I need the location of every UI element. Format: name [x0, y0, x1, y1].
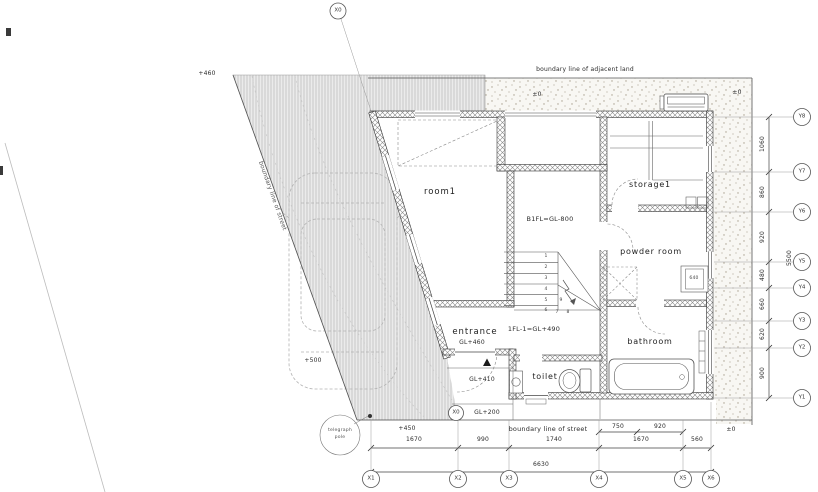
telegraph-pole-label-2: pole	[335, 435, 346, 441]
stair-step-5: 5	[544, 299, 547, 304]
grid-x0-bottom-label: X0	[452, 410, 459, 416]
level-fl1: 1FL-1=GL+490	[508, 326, 560, 333]
floor-plan-drawing: boundary line of adjacent land ±0 ±0 +46…	[0, 0, 818, 492]
dim-right-2: 920	[760, 231, 766, 243]
dim-bottom-0: 1670	[406, 437, 422, 443]
dim-bottom-2: 1740	[546, 437, 562, 443]
grid-x6-label: X6	[707, 476, 714, 482]
grid-y4-label: Y4	[799, 285, 806, 291]
plan-linework	[0, 0, 818, 492]
level-gl410: GL+410	[469, 377, 495, 383]
grid-x4-label: X4	[595, 476, 602, 482]
room-label-toilet: toilet	[532, 373, 557, 381]
dim-bottom-sub-1: 920	[654, 424, 666, 430]
room-label-storage1: storage1	[629, 181, 671, 189]
level-pm0-top-right: ±0	[732, 90, 741, 96]
level-gl460: GL+460	[459, 340, 485, 346]
boundary-street-bottom-label: boundary line of street	[509, 426, 588, 433]
grid-y7-label: Y7	[799, 169, 806, 175]
toilet-sink	[510, 371, 523, 393]
basin-width-label: 640	[689, 277, 698, 282]
dim-bottom-total: 6630	[533, 462, 549, 468]
far-street-boundary-line	[5, 143, 105, 492]
dim-right-1: 860	[760, 186, 766, 198]
room-label-entrance: entrance	[452, 328, 497, 337]
level-plus450: +450	[398, 426, 415, 432]
dim-bottom-3: 1670	[633, 437, 649, 443]
dim-right-4: 660	[760, 298, 766, 310]
grid-x3-label: X3	[505, 476, 512, 482]
grid-y1-label: Y1	[799, 395, 806, 401]
level-pm0-top-left: ±0	[532, 92, 541, 98]
stair-step-8: 8	[566, 311, 569, 316]
level-plus460: +460	[198, 71, 215, 77]
room-label-room1: room1	[424, 188, 456, 197]
stair-step-7: 7	[555, 311, 558, 316]
grid-x5-label: X5	[679, 476, 686, 482]
dim-right-6: 900	[760, 367, 766, 379]
stair-step-4: 4	[544, 288, 547, 293]
stair-step-6: 6	[544, 309, 547, 314]
bathroom-towel-rack	[699, 331, 705, 373]
telegraph-pole-label-1: telegraph	[328, 428, 352, 434]
level-plus500: +500	[304, 358, 321, 364]
grid-y8-label: Y8	[799, 114, 806, 120]
level-pm0-bottom-right: ±0	[726, 427, 735, 433]
grid-y5-label: Y5	[799, 259, 806, 265]
grid-y2-label: Y2	[799, 345, 806, 351]
boundary-adjacent-land-label: boundary line of adjacent land	[536, 67, 634, 73]
room-label-bathroom: bathroom	[627, 338, 672, 346]
dim-right-3: 480	[760, 269, 766, 281]
dim-bottom-sub-0: 750	[612, 424, 624, 430]
dim-right-5: 620	[760, 328, 766, 340]
page-edge-marks	[0, 28, 11, 175]
grid-y3-label: Y3	[799, 318, 806, 324]
room-label-powder-room: powder room	[620, 248, 682, 256]
level-gl200: GL+200	[474, 410, 500, 416]
dim-right-total: 5500	[787, 250, 793, 266]
grid-x1-label: X1	[367, 476, 374, 482]
stair-step-3: 3	[544, 277, 547, 282]
grid-y6-label: Y6	[799, 209, 806, 215]
dim-right-0: 1060	[760, 136, 766, 152]
ac-unit	[660, 94, 708, 111]
stair-step-9: 9	[559, 299, 562, 304]
bathtub	[609, 359, 694, 394]
toilet-fixture	[559, 369, 591, 393]
grid-x0-top-label: X0	[334, 8, 341, 14]
stair-step-2: 2	[544, 266, 547, 271]
stair-step-1: 1	[544, 255, 547, 260]
grid-x2-label: X2	[454, 476, 461, 482]
dim-bottom-4: 560	[691, 437, 703, 443]
dim-bottom-1: 990	[477, 437, 489, 443]
level-b1fl: B1FL=GL-800	[527, 216, 574, 223]
